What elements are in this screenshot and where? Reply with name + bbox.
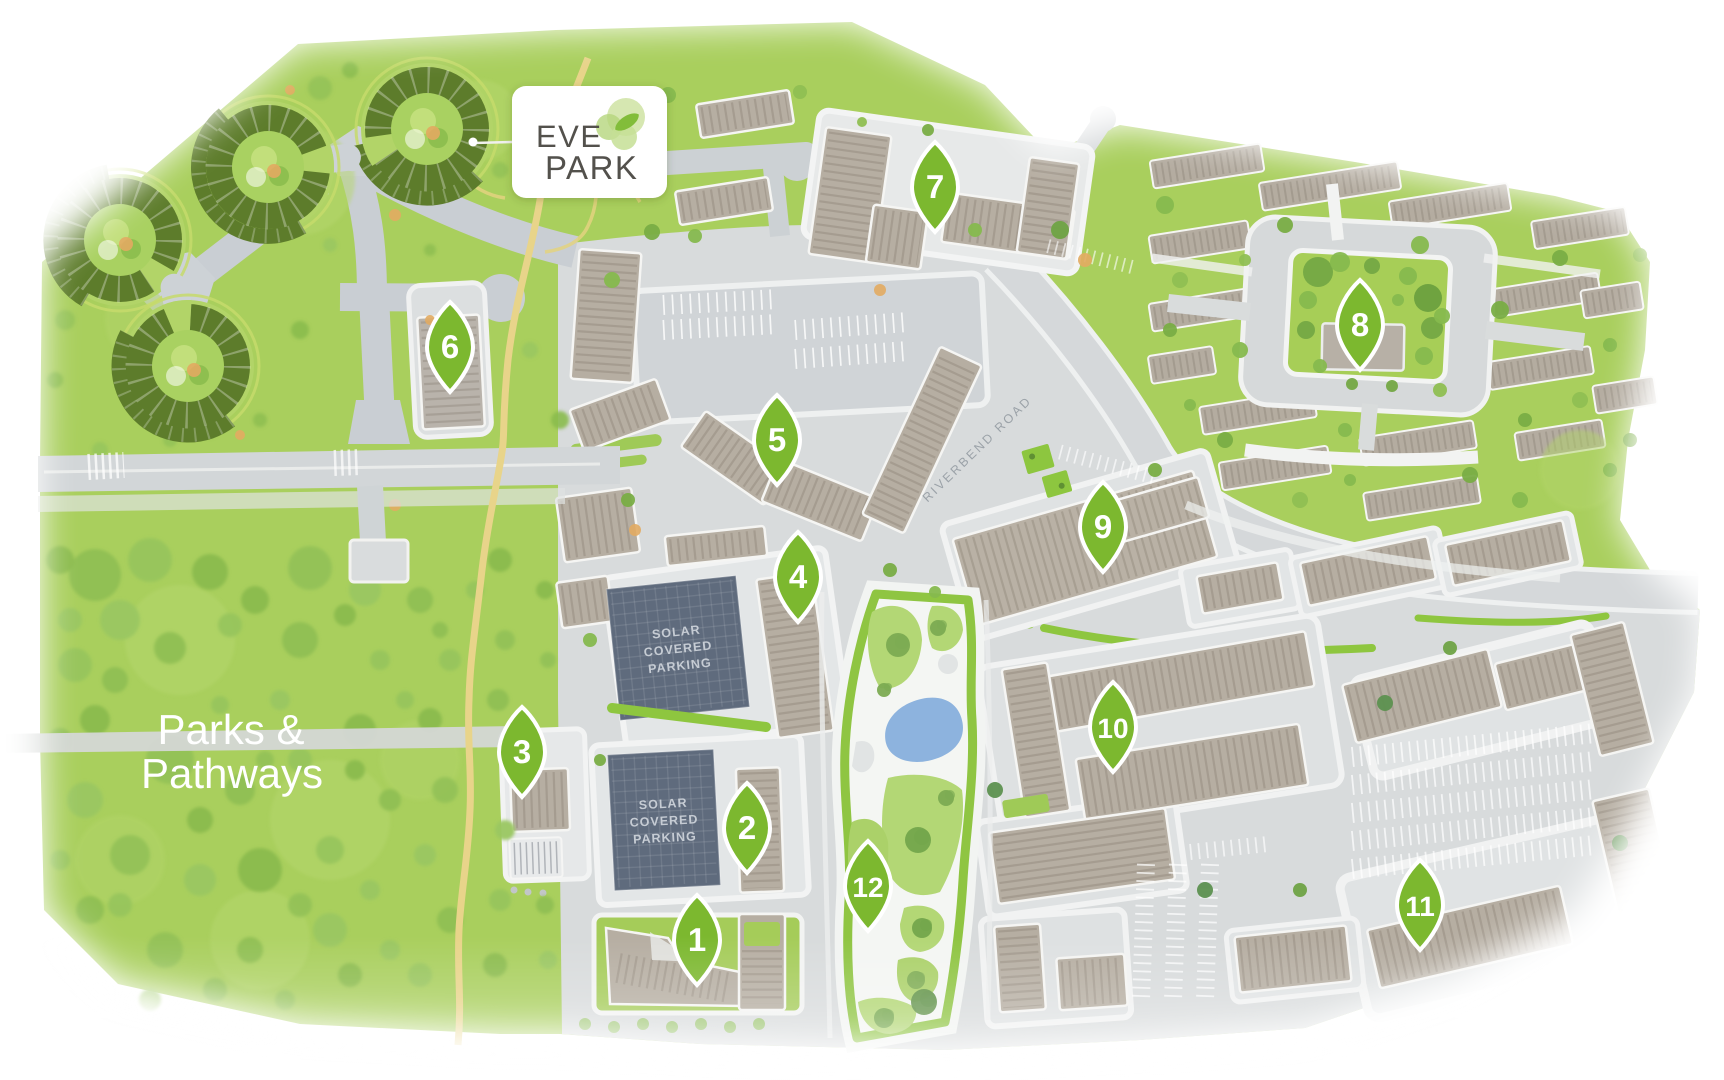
svg-text:9: 9 [1094, 508, 1112, 545]
svg-text:Parks &: Parks & [157, 706, 304, 753]
svg-text:5: 5 [768, 421, 786, 458]
svg-text:11: 11 [1405, 891, 1435, 922]
svg-text:4: 4 [789, 558, 808, 595]
svg-text:SOLAR: SOLAR [638, 796, 687, 813]
svg-text:3: 3 [513, 733, 531, 770]
svg-text:6: 6 [441, 328, 459, 365]
svg-text:7: 7 [926, 168, 944, 205]
svg-text:PARK: PARK [545, 149, 638, 186]
svg-text:Pathways: Pathways [141, 750, 323, 797]
svg-text:12: 12 [852, 872, 883, 903]
svg-text:10: 10 [1097, 713, 1128, 744]
svg-text:2: 2 [738, 809, 756, 846]
svg-text:8: 8 [1351, 306, 1369, 343]
